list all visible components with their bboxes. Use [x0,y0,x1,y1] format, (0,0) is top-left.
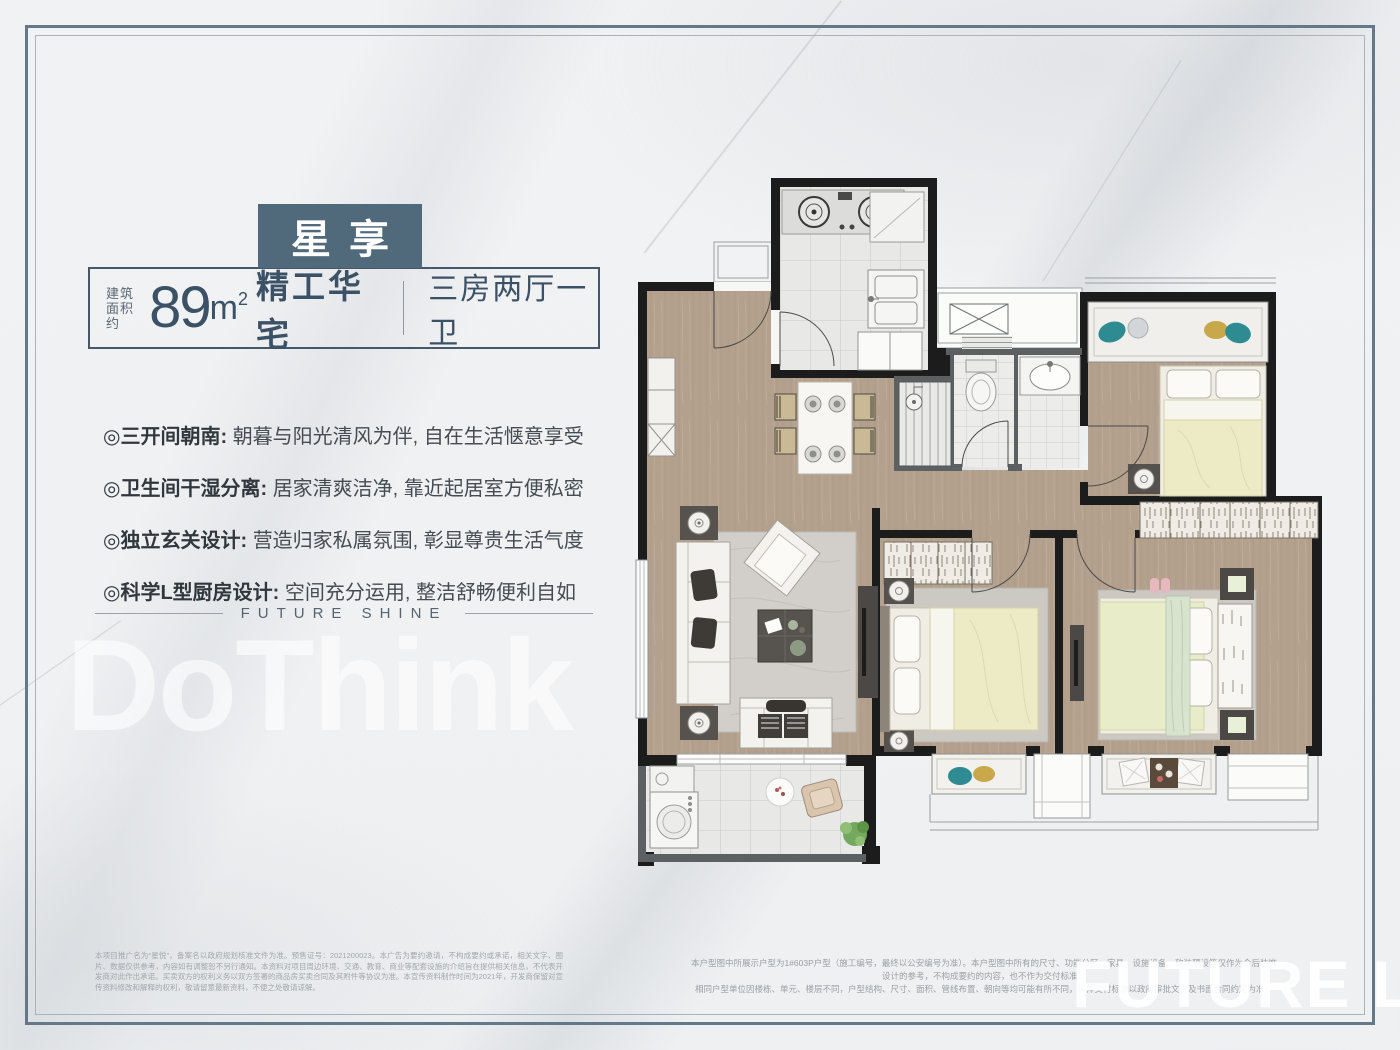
bed-pillow [894,616,920,662]
tv-icon [1074,640,1078,686]
bed-lamp-icon [1134,469,1154,489]
gold-pillow [1204,321,1228,339]
shower-area [899,382,951,466]
shoe-cabinet [648,358,675,456]
tv-icon [862,608,866,676]
living-room [676,506,878,748]
sofa-pillow [690,617,717,649]
poster-page: { "colors": { "accent": "#50697b", "text… [0,0,1400,1050]
entry [648,358,675,456]
selling-points: ◎三开间朝南: 朝暮与阳光清风为伴, 自在生活惬意享受 ◎卫生间干湿分离: 居家… [103,420,603,628]
window-recess [1228,754,1308,800]
bed-headboard [880,606,890,732]
area-prefix: 建筑 面积约 [106,286,143,331]
vent-shaft [962,336,1012,349]
dining-chair [775,428,796,454]
sofa-pillow [690,568,718,601]
plan-title-box: 星享 [258,204,422,268]
area-unit-wrap: m2 [210,289,248,328]
quilt-folddown [930,608,954,730]
bed-pillow [1216,370,1260,398]
bed-lamp-icon [889,581,909,601]
plan-title: 星享 [273,207,407,265]
layout-text: 三房两厅一卫 [428,264,598,352]
future-shine-divider: FUTURE SHINE [95,605,593,622]
slippers-icon [1161,578,1170,593]
selling-point: ◎卫生间干湿分离: 居家清爽洁净, 靠近起居室方便私密 [103,472,603,501]
wardrobe-long [1140,502,1318,538]
tv-cabinet [858,586,878,698]
disclaimer-left: 本项目推广名为“星悦”，备案名以政府规划核准文件为准。预售证号：20212000… [95,951,563,993]
nightstand-lamp [1228,717,1246,733]
dining-chair [775,394,796,420]
area-unit: m [210,289,238,327]
fur-pillow [1128,318,1148,338]
area-suffix: 精工华宅 [256,260,383,356]
round-rug [766,778,794,806]
dining-table [798,382,852,474]
bed-lamp-icon [890,732,908,750]
divider-text: FUTURE SHINE [241,605,448,622]
selling-point: ◎科学L型厨房设计: 空间充分运用, 整洁舒畅便利自如 [103,576,603,605]
bed-curtain [1166,596,1190,736]
dining-chair [854,394,875,420]
area-info-box: 建筑 面积约 89 m2 精工华宅 三房两厅一卫 [88,267,600,349]
south-bay-windows [930,754,1318,830]
toilet-tank [966,360,996,372]
elevator-icon [950,304,1008,334]
slippers-icon [1150,578,1159,593]
dothink-watermark: DoThink [66,610,572,760]
dining-chair [854,428,875,454]
teal-pillow [948,767,972,785]
gold-pillow [973,766,995,782]
tray [1150,758,1178,788]
floor-plan [630,170,1330,880]
area-sup: 2 [238,289,248,309]
west-window [636,560,648,718]
area-value: 89 [149,279,210,337]
selling-point: ◎独立玄关设计: 营造归家私属氛围, 彰显尊贵生活气度 [103,524,603,553]
selling-point: ◎三开间朝南: 朝暮与阳光清风为伴, 自在生活惬意享受 [103,420,603,449]
divider-line-left [95,613,223,614]
bed-pillow [1167,370,1211,398]
laundry-sink [650,766,694,792]
future-life-watermark: FUTURE LIFE [1072,946,1400,1022]
nightstand-lamp [1228,576,1246,592]
balcony-slider [677,754,846,764]
bed-pillow [894,668,920,714]
info-divider [403,281,404,335]
divider-line-right [465,613,593,614]
toilet-icon [966,373,996,411]
quilt-folddown [1164,400,1262,420]
